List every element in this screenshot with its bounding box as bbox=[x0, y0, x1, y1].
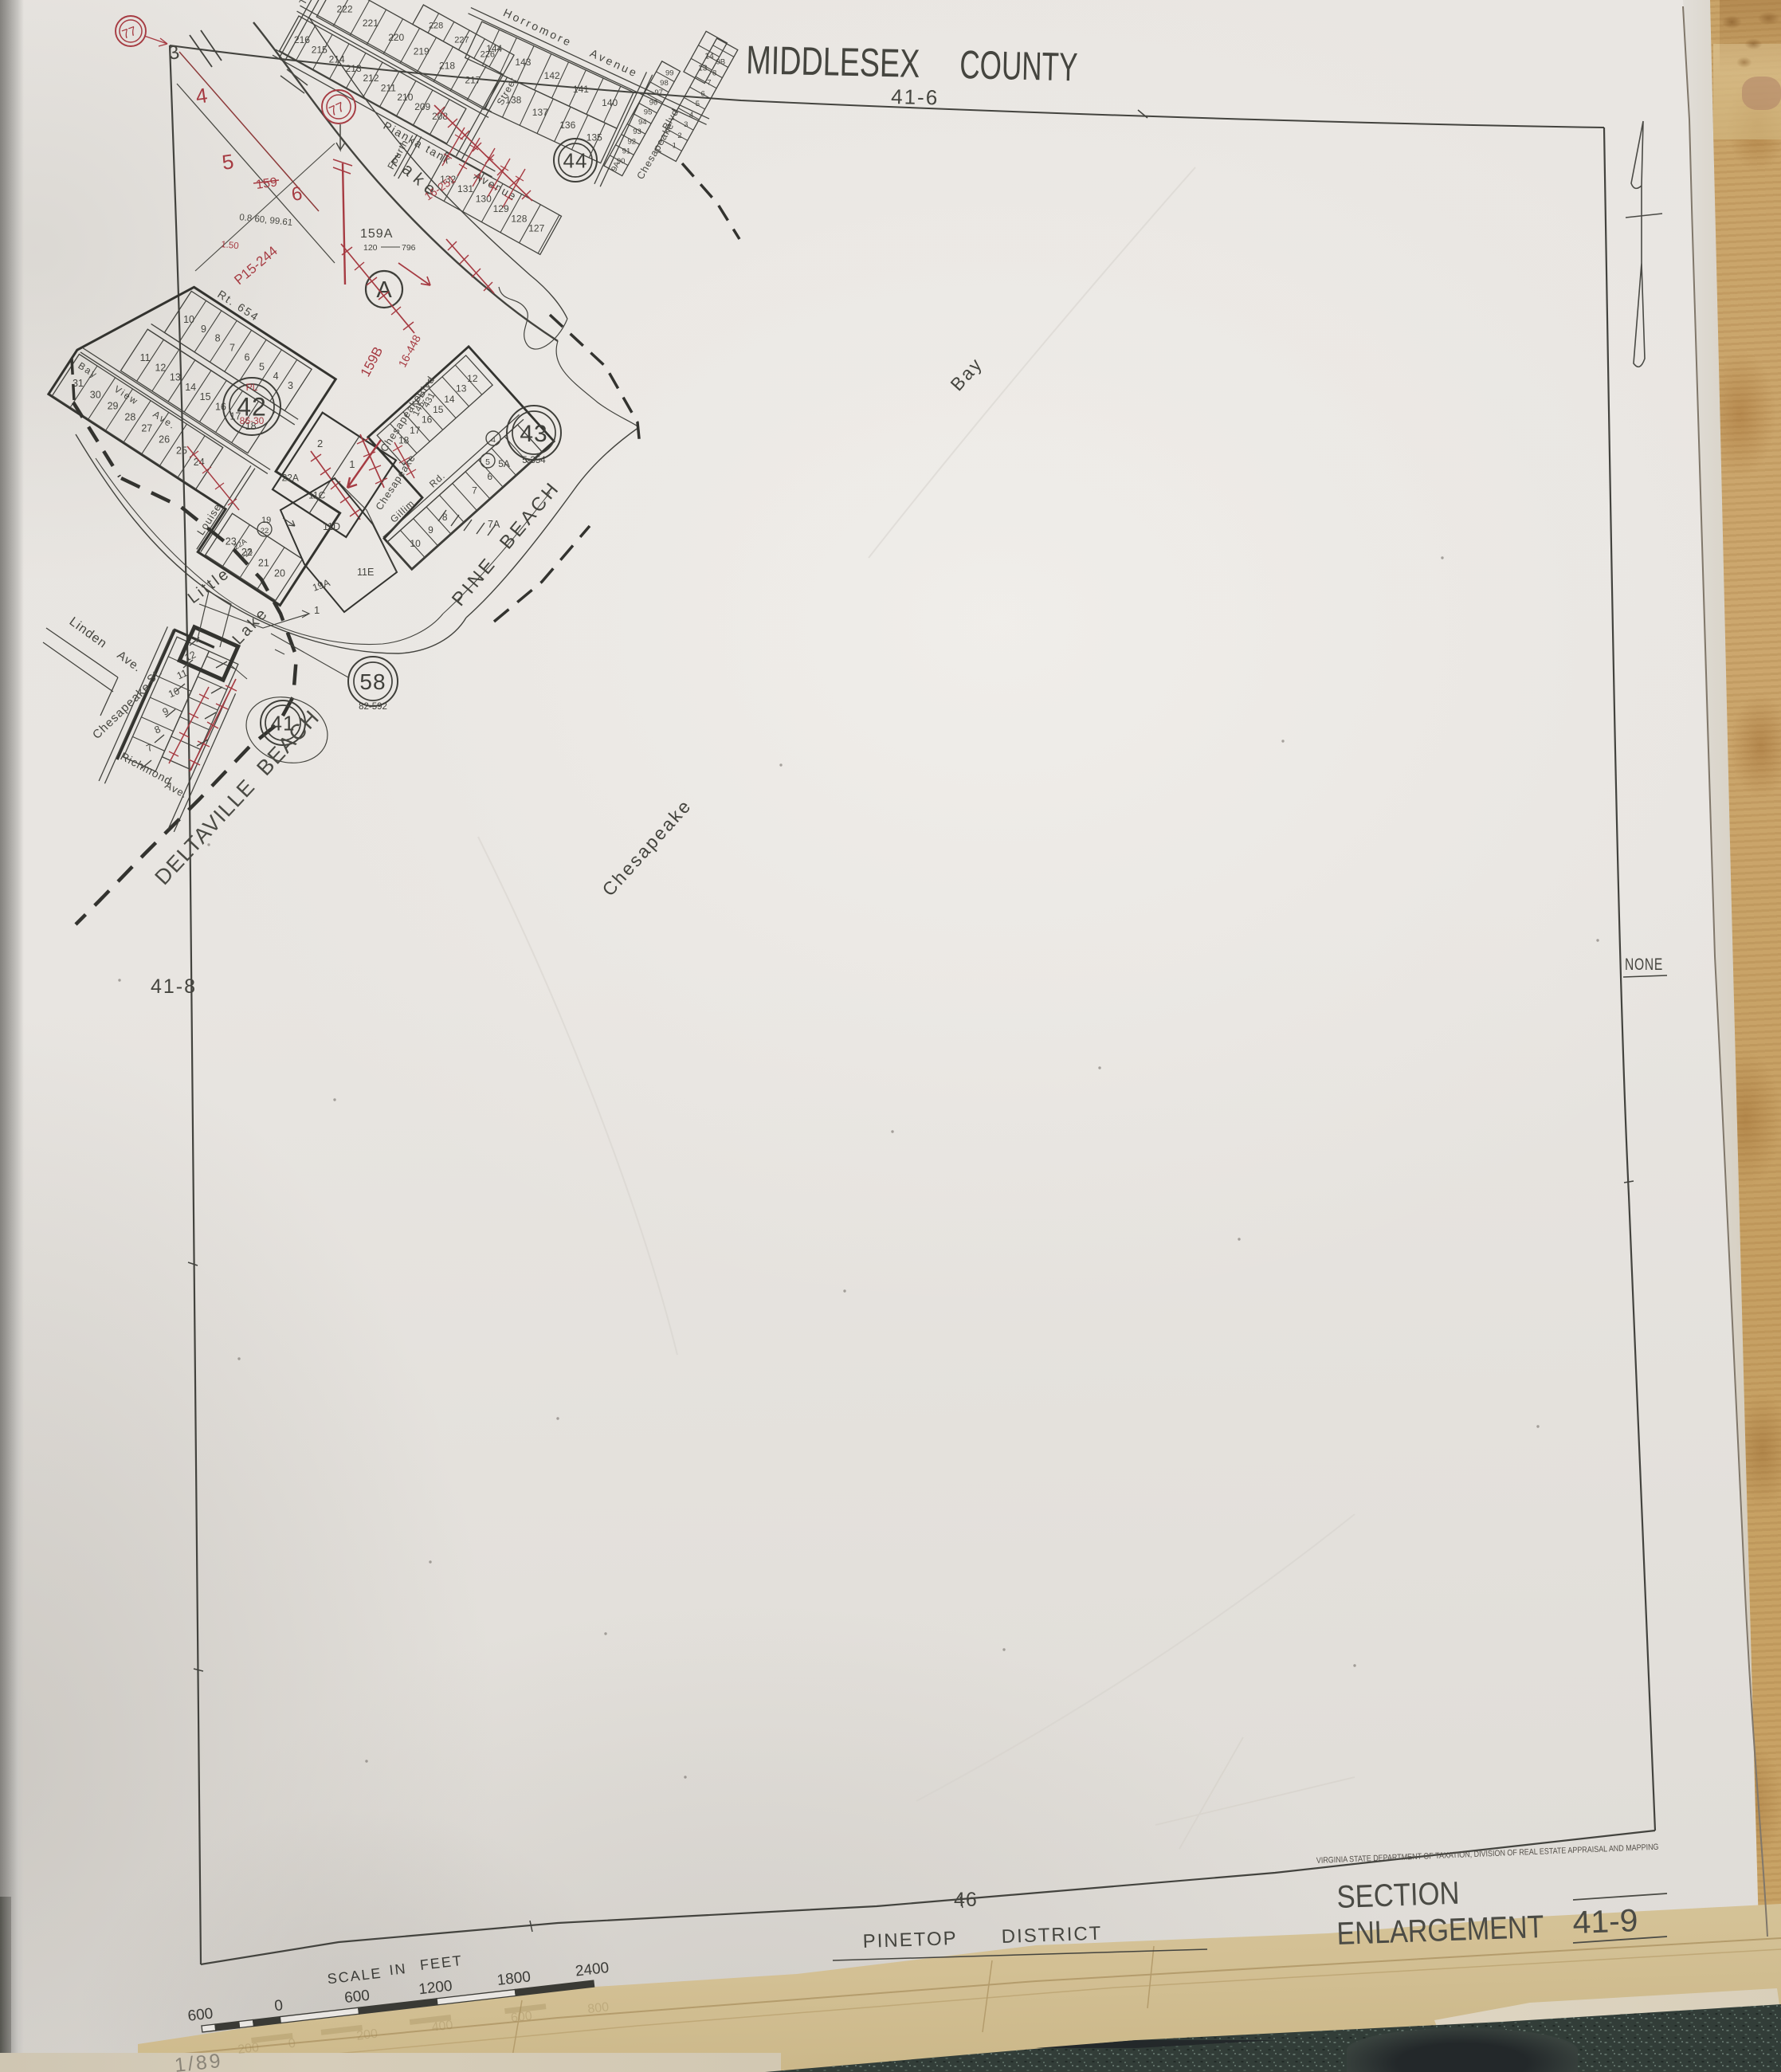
svg-text:1: 1 bbox=[349, 458, 355, 470]
svg-text:210: 210 bbox=[397, 92, 413, 103]
svg-text:13: 13 bbox=[170, 371, 181, 383]
svg-text:200: 200 bbox=[355, 2027, 379, 2043]
svg-text:211: 211 bbox=[381, 82, 396, 93]
svg-text:6: 6 bbox=[290, 182, 304, 206]
svg-text:8: 8 bbox=[442, 512, 448, 523]
svg-text:10: 10 bbox=[183, 314, 194, 325]
svg-text:144: 144 bbox=[486, 43, 502, 54]
svg-text:3: 3 bbox=[167, 41, 181, 65]
svg-text:227: 227 bbox=[454, 35, 469, 45]
svg-text:796: 796 bbox=[402, 243, 416, 253]
svg-text:218: 218 bbox=[439, 61, 455, 72]
svg-text:143: 143 bbox=[515, 57, 531, 68]
svg-text:Rd.: Rd. bbox=[427, 470, 447, 490]
svg-text:PL: PL bbox=[246, 382, 258, 393]
svg-text:DISTRICT: DISTRICT bbox=[1001, 1923, 1103, 1948]
svg-text:Ave.: Ave. bbox=[163, 779, 190, 800]
svg-text:215: 215 bbox=[312, 44, 328, 55]
svg-text:9: 9 bbox=[428, 524, 433, 536]
svg-text:16: 16 bbox=[215, 401, 226, 412]
svg-text:127: 127 bbox=[528, 223, 544, 234]
svg-text:5-354: 5-354 bbox=[522, 456, 546, 465]
svg-text:86-30: 86-30 bbox=[240, 415, 265, 426]
svg-text:4: 4 bbox=[689, 111, 693, 120]
svg-text:5: 5 bbox=[259, 361, 265, 372]
svg-text:95: 95 bbox=[644, 108, 653, 117]
svg-text:600: 600 bbox=[186, 2005, 214, 2025]
svg-text:7: 7 bbox=[229, 342, 235, 353]
svg-text:Linden: Linden bbox=[67, 614, 110, 651]
svg-text:200: 200 bbox=[237, 2041, 260, 2057]
svg-text:140: 140 bbox=[602, 97, 618, 108]
svg-text:96: 96 bbox=[649, 98, 658, 107]
svg-text:Ave.: Ave. bbox=[151, 409, 178, 432]
svg-text:5: 5 bbox=[696, 100, 700, 108]
svg-text:142: 142 bbox=[544, 70, 560, 81]
svg-text:159B: 159B bbox=[358, 344, 386, 379]
svg-text:14: 14 bbox=[185, 382, 196, 393]
svg-text:93: 93 bbox=[633, 128, 641, 136]
svg-text:Lake: Lake bbox=[229, 604, 273, 649]
svg-text:58: 58 bbox=[359, 669, 386, 694]
svg-text:91: 91 bbox=[622, 147, 631, 156]
svg-text:20: 20 bbox=[274, 567, 285, 579]
svg-text:213: 213 bbox=[346, 63, 362, 74]
svg-text:Bay: Bay bbox=[946, 353, 987, 394]
svg-text:2: 2 bbox=[677, 131, 681, 140]
svg-text:17: 17 bbox=[410, 425, 421, 436]
svg-text:SECTION: SECTION bbox=[1336, 1876, 1460, 1915]
svg-text:2400: 2400 bbox=[575, 1960, 610, 1980]
svg-text:16-448: 16-448 bbox=[396, 332, 424, 369]
svg-text:15: 15 bbox=[200, 391, 211, 402]
svg-text:11: 11 bbox=[140, 352, 151, 363]
svg-text:92: 92 bbox=[627, 137, 636, 146]
svg-text:217: 217 bbox=[465, 74, 481, 85]
svg-text:1800: 1800 bbox=[496, 1968, 532, 1989]
svg-text:Blvd: Blvd bbox=[660, 107, 681, 132]
svg-text:7: 7 bbox=[707, 79, 711, 88]
svg-text:IN: IN bbox=[388, 1960, 407, 1978]
svg-text:5: 5 bbox=[485, 457, 490, 467]
svg-text:141: 141 bbox=[573, 84, 589, 95]
svg-text:7: 7 bbox=[472, 485, 477, 496]
svg-text:27: 27 bbox=[141, 422, 152, 434]
svg-text:FEET: FEET bbox=[419, 1952, 464, 1973]
svg-text:219: 219 bbox=[414, 46, 430, 57]
svg-text:1: 1 bbox=[314, 604, 320, 616]
svg-text:VIRGINIA STATE DEPARTMENT O: VIRGINIA STATE DEPARTMENT OF TAXATION, D… bbox=[1316, 1842, 1659, 1866]
svg-text:13: 13 bbox=[456, 383, 467, 394]
svg-text:159: 159 bbox=[255, 175, 278, 192]
svg-text:5A: 5A bbox=[498, 458, 510, 469]
svg-text:21: 21 bbox=[258, 557, 269, 568]
svg-text:222: 222 bbox=[336, 3, 352, 14]
svg-text:St.: St. bbox=[144, 665, 165, 685]
svg-text:7: 7 bbox=[144, 742, 154, 755]
svg-text:46: 46 bbox=[954, 1889, 978, 1911]
svg-text:MIDDLESEX: MIDDLESEX bbox=[746, 37, 920, 86]
svg-text:4: 4 bbox=[273, 371, 279, 382]
svg-text:120: 120 bbox=[363, 243, 378, 253]
svg-text:94: 94 bbox=[638, 118, 647, 127]
svg-text:41-9: 41-9 bbox=[1572, 1903, 1638, 1941]
svg-text:COUNTY: COUNTY bbox=[959, 42, 1078, 89]
svg-text:PINETOP: PINETOP bbox=[862, 1928, 958, 1952]
svg-text:600: 600 bbox=[510, 2009, 533, 2025]
svg-text:10: 10 bbox=[410, 538, 421, 549]
svg-text:138: 138 bbox=[505, 94, 521, 105]
svg-text:P15-244: P15-244 bbox=[231, 243, 280, 288]
svg-text:228: 228 bbox=[429, 21, 443, 30]
svg-text:6: 6 bbox=[487, 471, 492, 482]
svg-text:128: 128 bbox=[511, 213, 527, 224]
svg-text:0.8 60, 99.61: 0.8 60, 99.61 bbox=[239, 213, 293, 228]
svg-text:25: 25 bbox=[176, 445, 187, 457]
svg-text:PINE BEACH: PINE BEACH bbox=[448, 477, 565, 610]
svg-text:212: 212 bbox=[363, 73, 379, 84]
svg-text:Ave.: Ave. bbox=[115, 648, 144, 675]
svg-text:1200: 1200 bbox=[418, 1978, 453, 1999]
svg-text:6: 6 bbox=[701, 90, 705, 99]
svg-text:7A: 7A bbox=[488, 519, 500, 530]
svg-text:11E: 11E bbox=[357, 567, 374, 578]
svg-text:11D: 11D bbox=[323, 521, 340, 532]
svg-text:Chesapeake: Chesapeake bbox=[598, 795, 695, 900]
svg-text:16: 16 bbox=[422, 414, 433, 426]
svg-text:19A: 19A bbox=[311, 577, 331, 594]
svg-text:159A: 159A bbox=[360, 227, 393, 241]
svg-text:99: 99 bbox=[665, 69, 674, 78]
svg-text:129: 129 bbox=[493, 203, 509, 214]
svg-text:SCALE: SCALE bbox=[327, 1965, 383, 1988]
svg-text:5: 5 bbox=[221, 149, 236, 175]
svg-text:82-592: 82-592 bbox=[359, 702, 387, 712]
svg-text:41-8: 41-8 bbox=[151, 975, 197, 998]
svg-text:221: 221 bbox=[363, 18, 379, 29]
svg-text:10: 10 bbox=[167, 685, 181, 700]
svg-text:0: 0 bbox=[288, 2037, 296, 2051]
svg-text:220: 220 bbox=[388, 32, 404, 43]
svg-text:97: 97 bbox=[654, 88, 663, 97]
svg-text:6: 6 bbox=[245, 351, 250, 363]
svg-text:13: 13 bbox=[698, 63, 708, 73]
svg-text:14: 14 bbox=[444, 394, 455, 405]
svg-text:22A: 22A bbox=[282, 473, 299, 484]
svg-text:3: 3 bbox=[684, 120, 688, 129]
svg-text:600: 600 bbox=[343, 1988, 371, 2007]
svg-text:8: 8 bbox=[712, 69, 716, 77]
svg-text:30: 30 bbox=[90, 389, 101, 400]
svg-text:135: 135 bbox=[586, 132, 602, 143]
svg-text:ENLARGEMENT: ENLARGEMENT bbox=[1336, 1909, 1544, 1952]
svg-text:209: 209 bbox=[414, 101, 430, 112]
svg-text:800: 800 bbox=[587, 2000, 610, 2016]
svg-text:131: 131 bbox=[457, 183, 473, 194]
svg-text:0: 0 bbox=[273, 1997, 284, 2015]
svg-text:2: 2 bbox=[317, 438, 323, 449]
svg-text:29: 29 bbox=[108, 401, 119, 412]
svg-text:136: 136 bbox=[559, 120, 575, 131]
svg-text:44: 44 bbox=[563, 148, 588, 172]
svg-text:400: 400 bbox=[431, 2019, 454, 2035]
svg-text:9: 9 bbox=[201, 324, 206, 335]
svg-text:12: 12 bbox=[155, 362, 166, 373]
svg-text:1: 1 bbox=[673, 141, 677, 150]
svg-text:DELTAVILLE BEACH: DELTAVILLE BEACH bbox=[150, 705, 324, 889]
svg-text:18: 18 bbox=[398, 435, 410, 446]
svg-text:1/89: 1/89 bbox=[174, 2050, 224, 2072]
svg-text:41-6: 41-6 bbox=[891, 84, 940, 109]
svg-text:77: 77 bbox=[327, 99, 347, 119]
svg-text:15: 15 bbox=[433, 404, 444, 415]
svg-text:90: 90 bbox=[617, 157, 626, 166]
svg-text:28: 28 bbox=[124, 412, 135, 423]
svg-text:137: 137 bbox=[532, 107, 548, 118]
svg-text:14: 14 bbox=[704, 51, 714, 61]
svg-text:26: 26 bbox=[159, 434, 170, 445]
svg-text:43: 43 bbox=[520, 421, 547, 447]
svg-text:3: 3 bbox=[288, 380, 293, 391]
svg-text:NONE: NONE bbox=[1625, 956, 1663, 974]
svg-text:1.50: 1.50 bbox=[221, 240, 240, 251]
svg-text:22: 22 bbox=[261, 527, 269, 536]
svg-text:4: 4 bbox=[194, 83, 210, 108]
svg-text:12: 12 bbox=[467, 373, 478, 384]
svg-text:8: 8 bbox=[215, 332, 221, 343]
svg-text:4: 4 bbox=[491, 435, 496, 445]
svg-text:Richmond: Richmond bbox=[119, 750, 175, 787]
svg-text:98: 98 bbox=[660, 79, 669, 88]
svg-text:9: 9 bbox=[161, 705, 171, 718]
